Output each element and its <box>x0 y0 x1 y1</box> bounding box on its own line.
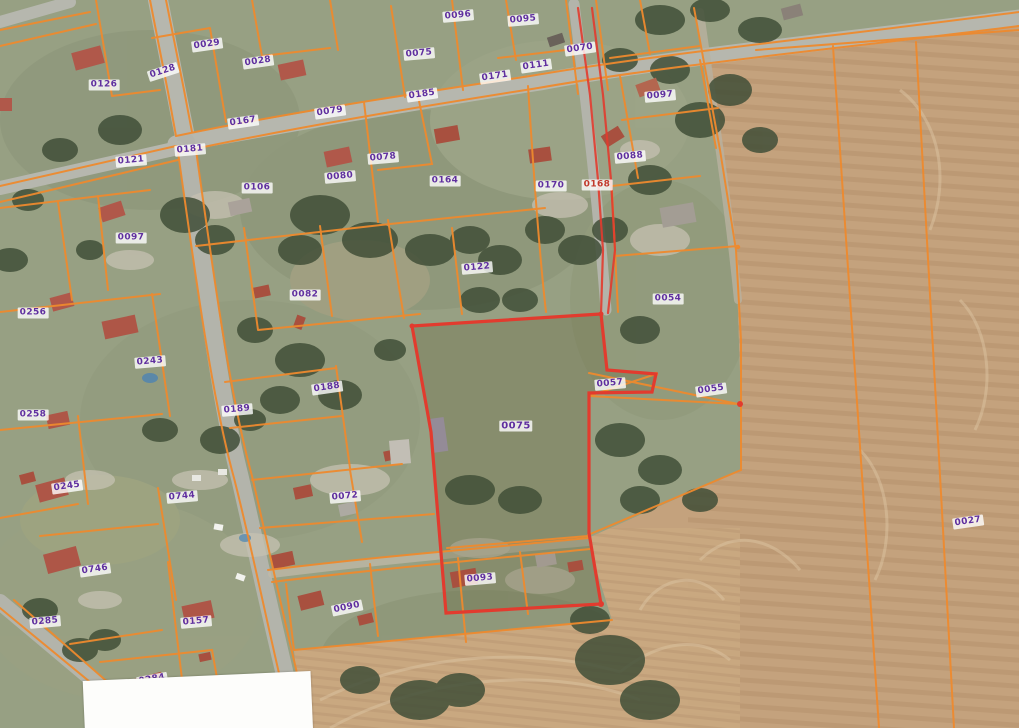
cadastral-map[interactable]: 0029002801260128009600950075007000790167… <box>0 0 1019 728</box>
white-overlay-patch <box>83 671 314 728</box>
aerial-basemap <box>0 0 1019 728</box>
